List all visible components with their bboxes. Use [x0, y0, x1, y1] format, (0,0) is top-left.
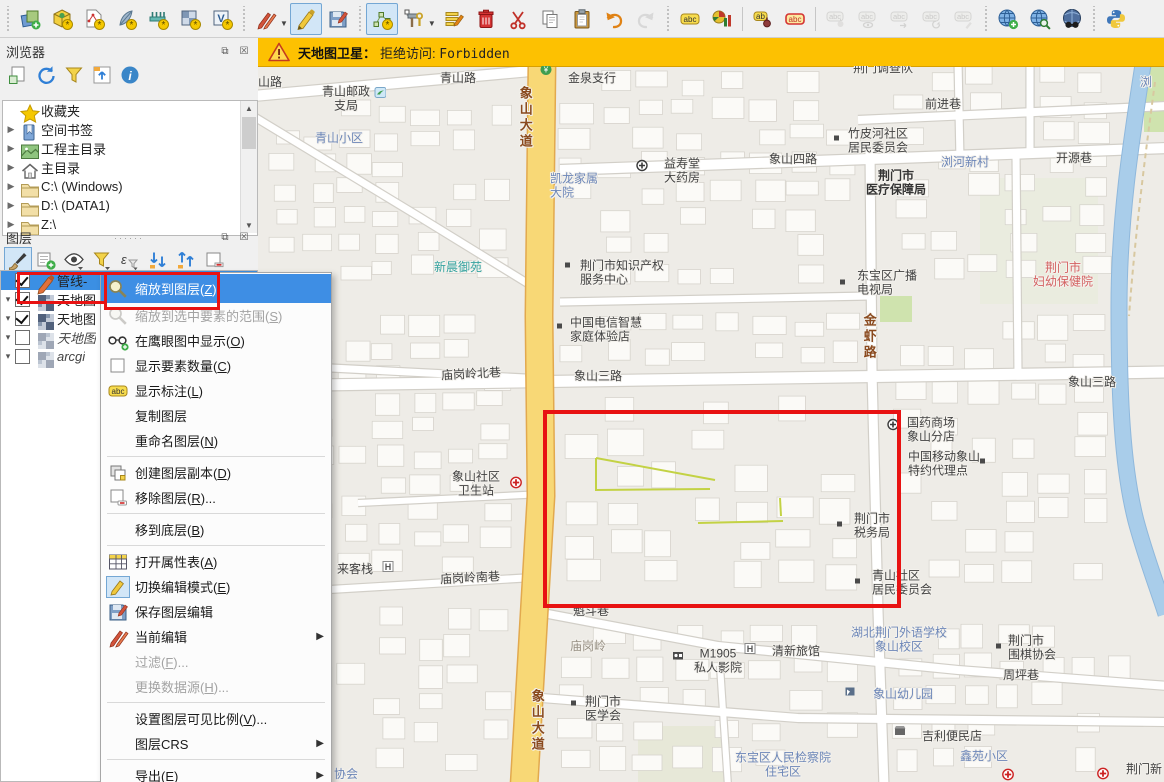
- menu-item-label: 缩放到选中要素的范围(S): [135, 306, 282, 325]
- data-source-manager-icon[interactable]: [14, 3, 46, 35]
- menu-item-filter: 过滤(F)...: [101, 649, 331, 674]
- layer-name: 天地图: [57, 328, 96, 347]
- expander-icon[interactable]: ▾: [1, 332, 15, 343]
- svg-text:abc: abc: [112, 386, 125, 395]
- new-geopackage-layer-icon[interactable]: *: [46, 3, 78, 35]
- svg-text:*: *: [162, 20, 166, 30]
- menu-separator: [107, 759, 325, 760]
- menu-item-zoom-to-layer[interactable]: 缩放到图层(Z): [101, 274, 331, 303]
- menu-item-save-layer-edits[interactable]: 保存图层编辑: [101, 599, 331, 624]
- message-bar-warning: 天地图卫星： 拒绝访问: Forbidden: [258, 38, 1164, 67]
- map-area: 天地图卫星： 拒绝访问: Forbidden 山路青山邮政 支局青山路青山小区象…: [258, 38, 1164, 782]
- metasearch-zoom-icon[interactable]: [1024, 3, 1056, 35]
- browser-item-主目录[interactable]: ▶主目录: [3, 158, 257, 177]
- browser-item-空间书签[interactable]: ▶空间书签: [3, 120, 257, 139]
- warning-icon: [268, 42, 290, 62]
- menu-item-label: 显示标注(L): [135, 381, 203, 400]
- svg-text:abc: abc: [683, 14, 696, 23]
- expander-icon[interactable]: ▶: [3, 200, 19, 211]
- submenu-arrow-icon: ▶: [316, 631, 324, 642]
- menu-separator: [107, 702, 325, 703]
- menu-item-remove-layer[interactable]: 移除图层(R)...: [101, 485, 331, 510]
- menu-item-duplicate-layer[interactable]: 创建图层副本(D): [101, 460, 331, 485]
- zoom-to-layer-icon: [106, 279, 130, 299]
- map-label: 象山大道: [517, 86, 533, 150]
- warning-source-label: 天地图卫星：: [298, 43, 376, 62]
- map-label: 益寿堂 大药房: [664, 157, 700, 186]
- map-poi-cross-red-icon: [510, 477, 522, 492]
- layer-name: arcgi: [57, 349, 85, 364]
- map-label: 浏河新村: [941, 155, 989, 169]
- map-label: 庙岗岭南巷: [440, 569, 501, 587]
- submenu-arrow-icon: ▶: [316, 770, 324, 781]
- map-poi-bank-icon: ¥: [540, 66, 552, 79]
- project-home-icon: [19, 141, 37, 157]
- duplicate-layer-icon: [106, 463, 130, 483]
- map-label: 青山路: [440, 71, 476, 85]
- menu-item-layer-crs[interactable]: 图层CRS▶: [101, 731, 331, 756]
- map-label: 庙岗岭北巷: [441, 365, 502, 383]
- map-label: 开源巷: [1056, 151, 1092, 165]
- show-feature-count-icon: [106, 356, 130, 376]
- map-label: 前进巷: [925, 97, 961, 111]
- svg-text:abc: abc: [861, 12, 873, 21]
- menu-separator: [107, 456, 325, 457]
- new-spatialite-layer-icon[interactable]: *: [110, 3, 142, 35]
- svg-text:abc: abc: [893, 12, 905, 21]
- map-label: 象山三路: [574, 369, 622, 383]
- show-labels-icon: abc: [106, 381, 130, 401]
- map-label: 协会: [334, 767, 358, 781]
- layer-visibility-checkbox[interactable]: [15, 292, 30, 307]
- menu-item-label: 更换数据源(H)...: [135, 677, 229, 696]
- new-virtual-raster-icon[interactable]: *: [174, 3, 206, 35]
- pin-labels-icon[interactable]: ab: [747, 3, 779, 35]
- float-panel-icon[interactable]: ⧉: [217, 43, 233, 59]
- bookmark-icon: [19, 122, 37, 138]
- browser-item-收藏夹[interactable]: 收藏夹: [3, 101, 257, 120]
- svg-text:ε: ε: [121, 252, 127, 267]
- expander-icon[interactable]: ▾: [1, 313, 15, 324]
- map-poi-dot-icon: [993, 641, 1005, 656]
- map-annotation-rectangle: [543, 410, 901, 608]
- folder-icon: [19, 179, 37, 195]
- raster-layer-icon: [35, 292, 52, 308]
- scroll-thumb[interactable]: [242, 117, 256, 149]
- map-poi-cross-red-icon: [1002, 769, 1014, 782]
- toolbar-drag-handle[interactable]: [1091, 6, 1097, 32]
- new-shapefile-layer-icon[interactable]: *: [78, 3, 110, 35]
- layers-title-label: 图层: [6, 228, 214, 247]
- redo-icon: [630, 3, 662, 35]
- map-label: 荆门新: [1126, 762, 1162, 776]
- menu-item-label: 设置图层可见比例(V)...: [135, 709, 267, 728]
- browser-title-label: 浏览器: [6, 42, 214, 61]
- svg-text:*: *: [226, 20, 230, 30]
- expander-icon[interactable]: ▾: [1, 351, 15, 362]
- python-console-icon[interactable]: [1100, 3, 1132, 35]
- toggle-editing-icon: [106, 576, 130, 598]
- rotate-label-icon: abc: [916, 3, 948, 35]
- svg-text:abc: abc: [925, 12, 937, 21]
- menu-item-label: 导出(E): [135, 766, 178, 782]
- dropdown-caret-icon[interactable]: ▼: [280, 19, 288, 28]
- home-icon: [19, 160, 37, 176]
- folder-icon: [19, 198, 37, 214]
- map-poi-cinema-icon: [672, 650, 684, 665]
- collapse-all-icon[interactable]: [88, 62, 116, 88]
- metasearch-add-icon[interactable]: [992, 3, 1024, 35]
- toolbar-drag-handle[interactable]: [357, 6, 363, 32]
- menu-item-label: 移到底层(B): [135, 520, 204, 539]
- properties-info-icon[interactable]: i: [116, 62, 144, 88]
- menu-item-label: 图层CRS: [135, 734, 188, 753]
- svg-text:abc: abc: [829, 12, 841, 21]
- browser-item-label: D:\ (DATA1): [41, 198, 110, 213]
- map-label: 青山邮政 支局: [322, 85, 370, 114]
- raster-layer-icon: [35, 349, 52, 365]
- svg-text:abc: abc: [957, 12, 969, 21]
- map-poi-hotel-icon: H: [744, 643, 756, 658]
- svg-text:*: *: [130, 20, 134, 30]
- svg-text:¥: ¥: [543, 66, 549, 75]
- map-poi-dot-icon: [831, 133, 843, 148]
- float-panel-icon[interactable]: ⧉: [217, 229, 233, 245]
- menu-item-rename-layer[interactable]: 重命名图层(N): [101, 428, 331, 453]
- browser-item-工程主目录[interactable]: ▶工程主目录: [3, 139, 257, 158]
- move-label-icon: abc: [884, 3, 916, 35]
- map-label: 周坪巷: [1003, 668, 1039, 682]
- expander-icon[interactable]: ▶: [3, 124, 19, 135]
- expander-icon[interactable]: ▶: [3, 181, 19, 192]
- browser-item-D:\ (DATA1)[interactable]: ▶D:\ (DATA1): [3, 196, 257, 215]
- map-label: 象山三路: [1068, 375, 1116, 389]
- map-poi-dot-icon: [977, 456, 989, 471]
- map-label: 中国电信智慧 家庭体验店: [570, 316, 642, 345]
- map-label: 荆门市 医疗保障局: [866, 169, 926, 198]
- menu-item-export[interactable]: 导出(E)▶: [101, 763, 331, 782]
- save-layer-edits-icon[interactable]: [322, 3, 354, 35]
- menu-separator: [107, 545, 325, 546]
- layer-name: 天地图: [57, 309, 96, 328]
- new-virtual-layer-icon[interactable]: V*: [206, 3, 238, 35]
- layer-name: 管线-: [57, 271, 87, 290]
- menu-item-zoom-to-selection: 缩放到选中要素的范围(S): [101, 303, 331, 328]
- menu-item-set-scale-visibility[interactable]: 设置图层可见比例(V)...: [101, 706, 331, 731]
- scroll-up-icon[interactable]: ▲: [241, 101, 257, 116]
- browser-item-C:\ (Windows)[interactable]: ▶C:\ (Windows): [3, 177, 257, 196]
- refresh-icon[interactable]: [32, 62, 60, 88]
- map-poi-dot-icon: [554, 321, 566, 336]
- svg-text:H: H: [747, 644, 754, 654]
- map-label: 凯龙家属 大院: [550, 172, 598, 201]
- map-label: 竹皮河社区 居民委员会: [848, 127, 908, 156]
- browser-item-label: 空间书签: [41, 120, 93, 139]
- map-label: 荆门市 妇幼保健院: [1033, 261, 1093, 290]
- map-label: 吉利便民店: [922, 729, 982, 743]
- svg-text:*: *: [194, 20, 198, 30]
- expander-icon[interactable]: ▶: [3, 162, 19, 173]
- map-label: 荆门市 围棋协会: [1008, 634, 1056, 663]
- map-poi-hotel-icon: H: [382, 561, 394, 576]
- current-edits-icon: [106, 627, 130, 647]
- map-label: M1905 私人影院: [694, 647, 742, 676]
- map-label: 新晨御苑: [434, 260, 482, 274]
- map-label: 鑫苑小区: [960, 749, 1008, 763]
- map-label: 湖北荆门外语学校 象山校区: [851, 626, 947, 655]
- menu-item-label: 打开属性表(A): [135, 552, 217, 571]
- menu-item-copy-layer[interactable]: 复制图层: [101, 403, 331, 428]
- expander-icon[interactable]: ▶: [3, 143, 19, 154]
- cut-features-icon[interactable]: [502, 3, 534, 35]
- browser-scrollbar[interactable]: ▲ ▼: [240, 101, 257, 233]
- layer-visibility-checkbox[interactable]: [15, 273, 30, 288]
- filter-browser-icon[interactable]: [60, 62, 88, 88]
- new-mesh-layer-icon[interactable]: *: [142, 3, 174, 35]
- expander-icon[interactable]: ▾: [1, 294, 15, 305]
- map-label: 来客栈: [337, 562, 373, 576]
- map-poi-store-icon: [894, 725, 906, 740]
- menu-item-label: 保存图层编辑: [135, 602, 213, 621]
- dropdown-caret-icon[interactable]: ▼: [428, 19, 436, 28]
- menu-item-move-to-bottom[interactable]: 移到底层(B): [101, 517, 331, 542]
- change-label-icon: abc: [948, 3, 980, 35]
- raster-layer-icon: [35, 311, 52, 327]
- map-label: 青山小区: [315, 131, 363, 145]
- map-label: 清新旅馆: [772, 644, 820, 658]
- browser-item-label: 收藏夹: [41, 101, 80, 120]
- vertex-tool-icon[interactable]: [398, 3, 430, 35]
- star-icon: [19, 103, 37, 119]
- menu-item-change-data-source: 更换数据源(H)...: [101, 674, 331, 699]
- map-poi-dot-icon: [837, 277, 849, 292]
- browser-item-label: 工程主目录: [41, 139, 106, 158]
- toolbar-drag-handle[interactable]: [665, 6, 671, 32]
- current-edits-icon[interactable]: [250, 3, 282, 35]
- browser-panel-toolbar: i: [0, 62, 262, 88]
- map-label: 东宝区广播 电视局: [857, 269, 917, 298]
- submenu-arrow-icon: ▶: [316, 738, 324, 749]
- map-canvas[interactable]: 山路青山邮政 支局青山路青山小区象山大道金泉支行益寿堂 大药房凯龙家属 大院新晨…: [258, 66, 1164, 782]
- menu-item-label: 在鹰眼图中显示(O): [135, 331, 245, 350]
- layer-diagram-icon[interactable]: [706, 3, 738, 35]
- save-layer-edits-icon: [106, 602, 130, 622]
- svg-text:*: *: [98, 20, 102, 30]
- map-label: 象山四路: [769, 152, 817, 166]
- menu-item-label: 复制图层: [135, 406, 187, 425]
- toolbar-drag-handle[interactable]: [983, 6, 989, 32]
- map-label: 象山社区 卫生站: [452, 470, 500, 499]
- svg-text:ab: ab: [756, 12, 765, 21]
- zoom-to-selection-icon: [106, 306, 130, 326]
- raster-layer-icon: [35, 330, 52, 346]
- pin-unpin-labels-icon: abc: [820, 3, 852, 35]
- show-hide-labels-icon: abc: [852, 3, 884, 35]
- menu-item-label: 移除图层(R)...: [135, 488, 216, 507]
- toggle-editing-icon[interactable]: [290, 3, 322, 35]
- svg-text:*: *: [66, 20, 70, 30]
- toolbar-separator: [742, 7, 743, 31]
- menu-item-label: 切换编辑模式(E): [135, 577, 230, 596]
- map-label: 中国移动象山 特约代理点: [908, 450, 980, 479]
- layer-name: 天地图: [57, 290, 96, 309]
- svg-text:H: H: [385, 562, 392, 572]
- main-toolbar: *****V*▼*▼abcababcabcabcabcabcabc: [0, 0, 1164, 38]
- editing-pencil-icon: [35, 273, 52, 289]
- map-label: 荆门市知识产权 服务中心: [580, 259, 664, 288]
- undo-icon[interactable]: [598, 3, 630, 35]
- browser-tree: 收藏夹▶空间书签▶工程主目录▶主目录▶C:\ (Windows)▶D:\ (DA…: [2, 100, 258, 236]
- map-label: 荆门市 医学会: [585, 695, 621, 724]
- toolbar-separator: [815, 7, 816, 31]
- svg-text:abc: abc: [788, 14, 801, 23]
- menu-item-label: 缩放到图层(Z): [135, 279, 217, 298]
- close-panel-icon[interactable]: ☒: [236, 229, 252, 245]
- menu-item-show-labels[interactable]: abc显示标注(L): [101, 378, 331, 403]
- qgis-window: *****V*▼*▼abcababcabcabcabcabcabc 浏览器 ⧉ …: [0, 0, 1164, 782]
- show-in-overview-icon: [106, 331, 130, 351]
- menu-item-label: 重命名图层(N): [135, 431, 218, 450]
- map-label: 象山大道: [529, 689, 545, 753]
- close-panel-icon[interactable]: ☒: [236, 43, 252, 59]
- map-poi-cross-red-icon: [1097, 768, 1109, 782]
- toolbar-drag-handle[interactable]: [241, 6, 247, 32]
- layer-visibility-checkbox[interactable]: [15, 349, 30, 364]
- delete-selected-icon[interactable]: [470, 3, 502, 35]
- highlight-pinned-labels-icon[interactable]: abc: [779, 3, 811, 35]
- map-label: 荆门调查队: [853, 66, 913, 75]
- map-label: 象山幼儿园: [873, 687, 933, 701]
- open-attribute-table-icon: [106, 552, 130, 572]
- add-selected-layers-icon[interactable]: [4, 62, 32, 88]
- map-label: 国药商场 象山分店: [907, 416, 955, 445]
- layer-visibility-checkbox[interactable]: [15, 330, 30, 345]
- menu-item-label: 创建图层副本(D): [135, 463, 231, 482]
- remove-layer-icon: [106, 488, 130, 508]
- modify-attributes-icon[interactable]: [438, 3, 470, 35]
- menu-item-show-in-overview[interactable]: 在鹰眼图中显示(O): [101, 328, 331, 353]
- map-label: 浏: [1140, 75, 1152, 89]
- metasearch-icon[interactable]: [1056, 3, 1088, 35]
- menu-item-label: 显示要素数量(C): [135, 356, 231, 375]
- add-line-feature-icon[interactable]: *: [366, 3, 398, 35]
- paste-features-icon[interactable]: [566, 3, 598, 35]
- map-poi-postal-icon: [374, 87, 386, 102]
- browser-item-label: C:\ (Windows): [41, 179, 123, 194]
- layers-panel-title: 图层 ⧉ ☒: [0, 226, 258, 246]
- map-label: 庙岗岭: [570, 639, 606, 653]
- map-poi-dot-icon: [568, 698, 580, 713]
- menu-item-label: 过滤(F)...: [135, 652, 188, 671]
- warning-message: 拒绝访问: Forbidden: [380, 43, 510, 62]
- map-label: 东宝区人民检察院 住宅区: [735, 751, 831, 780]
- menu-separator: [107, 513, 325, 514]
- layer-visibility-checkbox[interactable]: [15, 311, 30, 326]
- svg-text:*: *: [385, 20, 389, 30]
- menu-item-open-attribute-table[interactable]: 打开属性表(A): [101, 549, 331, 574]
- map-label: 金泉支行: [568, 71, 616, 85]
- map-poi-dot-icon: [562, 260, 574, 275]
- layer-context-menu: 缩放到图层(Z)缩放到选中要素的范围(S)在鹰眼图中显示(O)显示要素数量(C)…: [100, 272, 332, 782]
- menu-item-label: 当前编辑: [135, 627, 187, 646]
- menu-item-toggle-editing[interactable]: 切换编辑模式(E): [101, 574, 331, 599]
- toolbar-drag-handle[interactable]: [5, 6, 11, 32]
- map-poi-school-icon: [844, 686, 856, 701]
- menu-item-current-edits[interactable]: 当前编辑▶: [101, 624, 331, 649]
- map-label: 金虾路: [861, 313, 877, 361]
- map-label: 山路: [258, 75, 282, 89]
- copy-features-icon[interactable]: [534, 3, 566, 35]
- map-poi-cross-dark-icon: [636, 160, 648, 175]
- browser-panel-title: 浏览器 ⧉ ☒: [0, 40, 258, 60]
- layer-labeling-icon[interactable]: abc: [674, 3, 706, 35]
- browser-item-label: 主目录: [41, 158, 80, 177]
- menu-item-show-feature-count[interactable]: 显示要素数量(C): [101, 353, 331, 378]
